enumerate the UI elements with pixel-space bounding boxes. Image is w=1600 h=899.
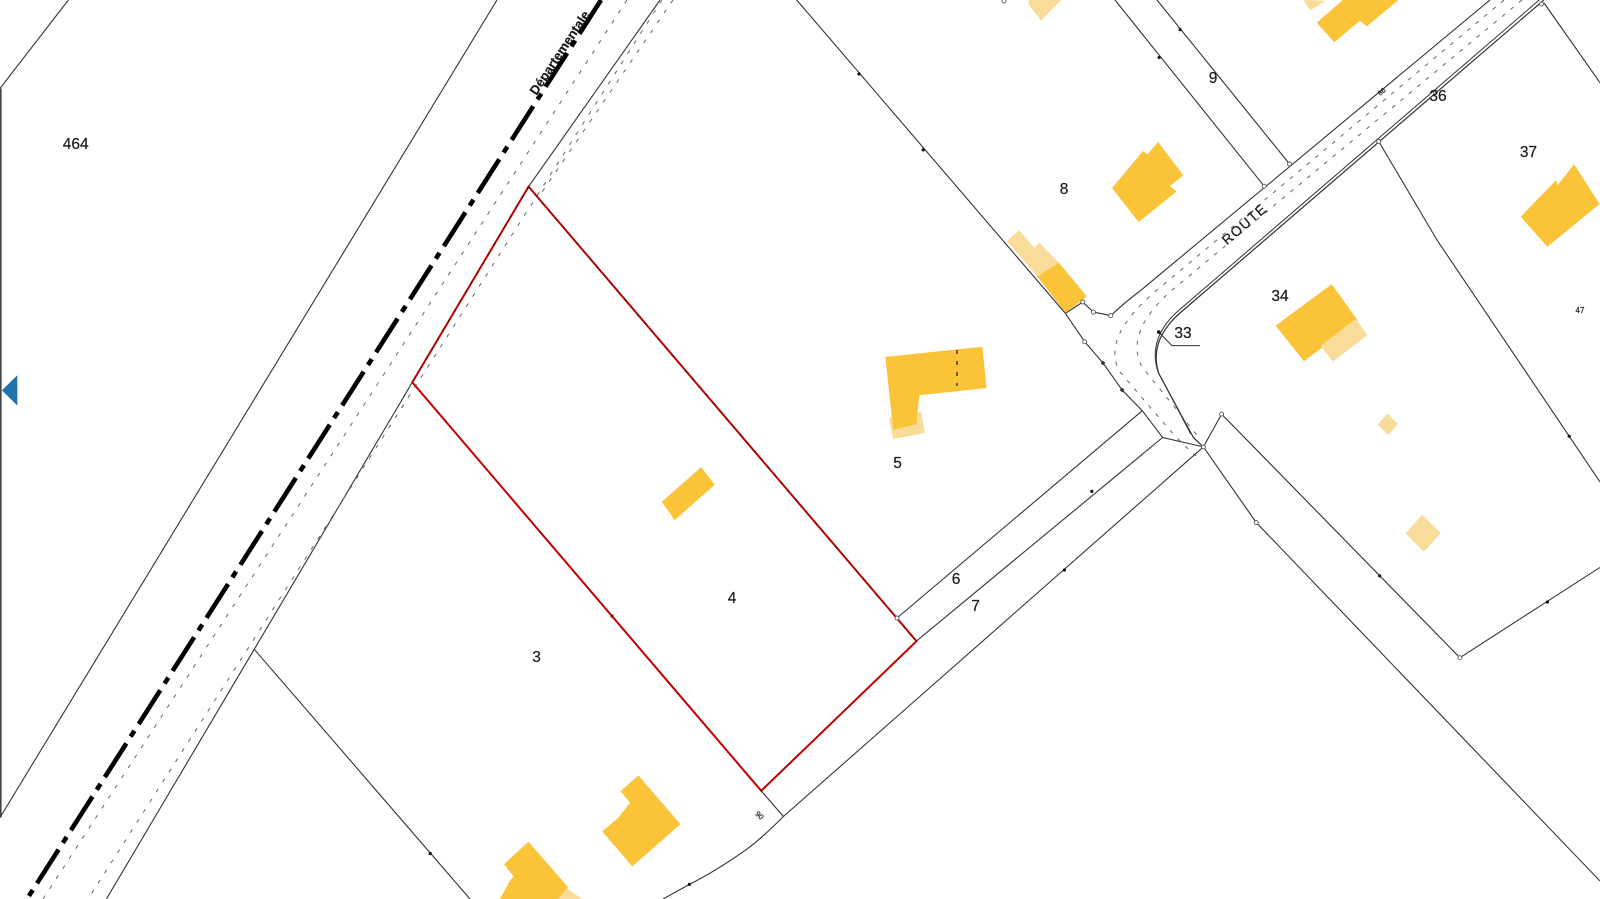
svg-text:33: 33 bbox=[1174, 325, 1191, 342]
svg-text:7: 7 bbox=[971, 598, 980, 615]
svg-text:36: 36 bbox=[1429, 88, 1446, 105]
svg-text:3: 3 bbox=[532, 649, 541, 666]
svg-text:8: 8 bbox=[1060, 181, 1069, 198]
svg-text:34: 34 bbox=[1271, 288, 1289, 305]
svg-text:4: 4 bbox=[728, 590, 737, 607]
svg-text:5: 5 bbox=[893, 455, 902, 472]
svg-text:47: 47 bbox=[1576, 306, 1585, 315]
svg-text:9: 9 bbox=[1209, 70, 1218, 87]
svg-text:6: 6 bbox=[952, 571, 961, 588]
svg-text:37: 37 bbox=[1520, 144, 1537, 161]
svg-text:464: 464 bbox=[63, 136, 89, 153]
